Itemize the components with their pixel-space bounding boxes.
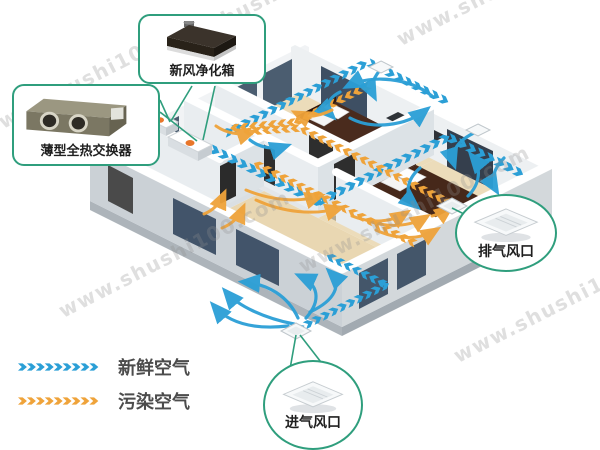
callout-exhaust-vent: 排气风口 (455, 194, 557, 272)
legend-polluted-air: 污染空气 (12, 388, 190, 414)
ceiling-vent-icon (469, 207, 543, 243)
ventilation-diagram: www.shushi100.com www.shushi100.com www.… (0, 0, 600, 450)
callout-heat-exchanger-label: 薄型全热交换器 (40, 145, 131, 158)
callout-exhaust-vent-label: 排气风口 (478, 245, 534, 259)
heat-exchanger-product-icon (20, 93, 152, 143)
callout-heat-exchanger: 薄型全热交换器 (12, 84, 160, 166)
callout-purifier: 新风净化箱 (138, 14, 266, 84)
legend: 新鲜空气 污染空气 (12, 354, 190, 414)
polluted-air-arrow-chain-icon (12, 393, 104, 409)
purifier-product-icon (154, 21, 250, 63)
legend-polluted-air-label: 污染空气 (118, 388, 190, 414)
callout-purifier-label: 新风净化箱 (169, 65, 234, 78)
legend-fresh-air-label: 新鲜空气 (118, 354, 190, 380)
ceiling-vent-icon (278, 380, 348, 414)
callout-intake-vent: 进气风口 (263, 360, 363, 450)
legend-fresh-air: 新鲜空气 (12, 354, 190, 380)
fresh-air-arrow-chain-icon (12, 359, 104, 375)
callout-intake-vent-label: 进气风口 (285, 416, 341, 430)
